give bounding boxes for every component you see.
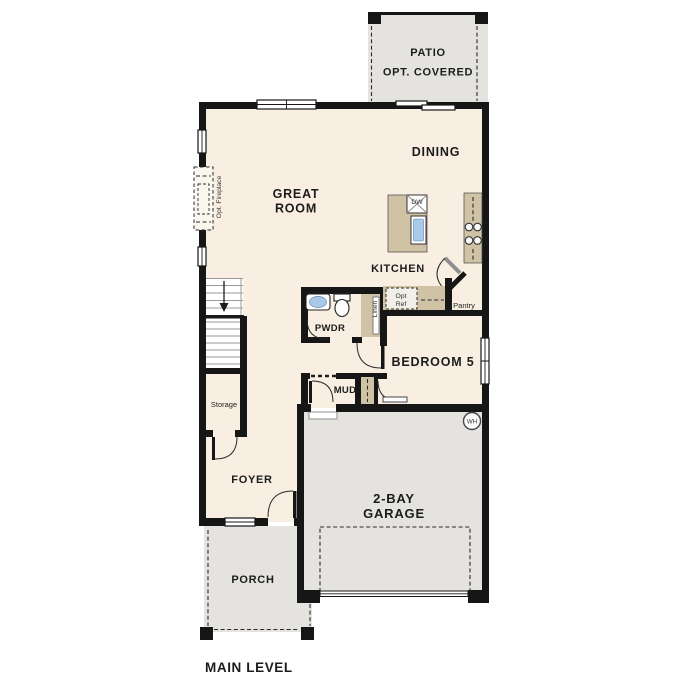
mud-label: MUD <box>334 385 357 396</box>
water-heater-label: WH <box>467 419 477 426</box>
wall-powder-bottom-2 <box>352 337 362 343</box>
wall-storage-bottom-2 <box>235 430 247 437</box>
patio-label-line1: PATIO <box>410 47 445 59</box>
dishwasher-label: DW <box>411 199 423 206</box>
storage-door-leaf <box>212 437 215 460</box>
mud-door-leaf <box>309 381 312 403</box>
plan-title: MAIN LEVEL <box>205 660 293 675</box>
island-sink-icon <box>414 219 424 241</box>
floor-plan-canvas: PATIO OPT. COVERED GREAT ROOM DINING KIT… <box>0 0 687 687</box>
porch-post-right <box>301 627 314 640</box>
kitchen-label: KITCHEN <box>371 263 425 275</box>
garage-pillar-left <box>304 590 320 603</box>
foyer-floor <box>202 405 303 522</box>
wall-powder-top <box>301 287 387 294</box>
storage-label: Storage <box>211 400 237 409</box>
closet-door-leaf <box>383 397 407 402</box>
bedroom5-label: BEDROOM 5 <box>392 355 475 369</box>
patio-edge <box>368 12 488 15</box>
wall-closet-right <box>374 377 378 404</box>
patio-slider-panel-2 <box>422 105 455 110</box>
floor-plan: PATIO OPT. COVERED GREAT ROOM DINING KIT… <box>0 0 687 687</box>
wall-garage-top-2 <box>336 404 482 412</box>
wall-stairs-right <box>240 316 247 437</box>
great-room-label-line1: GREAT <box>273 187 320 201</box>
wall-left-lower <box>199 230 206 526</box>
wall-foyer-bottom-2 <box>255 518 268 526</box>
patio-label-line2: OPT. COVERED <box>383 67 473 79</box>
wall-pantry-left <box>445 278 452 310</box>
powder-label: PWDR <box>315 323 345 334</box>
wall-powder-bottom-1 <box>301 337 330 343</box>
pantry-label: Pantry <box>453 301 475 310</box>
garage-entry-step <box>309 412 337 419</box>
patio-post-left <box>368 12 381 24</box>
opt-fireplace <box>194 167 213 230</box>
wall-stairs-bottom <box>206 368 245 374</box>
front-door-leaf <box>293 491 297 518</box>
wall-bedroom5-top <box>380 310 482 316</box>
great-room-label-line2: ROOM <box>275 202 317 216</box>
toilet-bowl-icon <box>335 300 349 317</box>
stairs-landing-edge <box>206 315 244 319</box>
opt-fireplace-label: Opt. Fireplace <box>216 175 223 218</box>
bedroom5-structure <box>380 310 482 316</box>
patio-post-right <box>475 12 488 24</box>
porch-label: PORCH <box>231 574 274 586</box>
powder-sink-icon <box>310 297 327 308</box>
wall-storage-bottom-1 <box>199 430 213 437</box>
wall-foyer-bottom-1 <box>199 518 225 526</box>
bedroom5-door-leaf <box>381 344 385 369</box>
wall-garage-left <box>297 404 304 603</box>
dining-label: DINING <box>412 145 461 159</box>
linen-label: Linen <box>372 300 379 317</box>
wall-mud-left <box>301 373 308 404</box>
garage-pillar-right <box>468 590 489 603</box>
garage-label-line2: GARAGE <box>363 506 425 521</box>
garage-label-line1: 2-BAY <box>373 491 415 506</box>
opt-ref-label-line1: Opt <box>396 293 407 300</box>
porch-post-left <box>200 627 213 640</box>
opt-ref-label-line2: Ref <box>396 301 407 308</box>
foyer-label: FOYER <box>231 474 272 486</box>
